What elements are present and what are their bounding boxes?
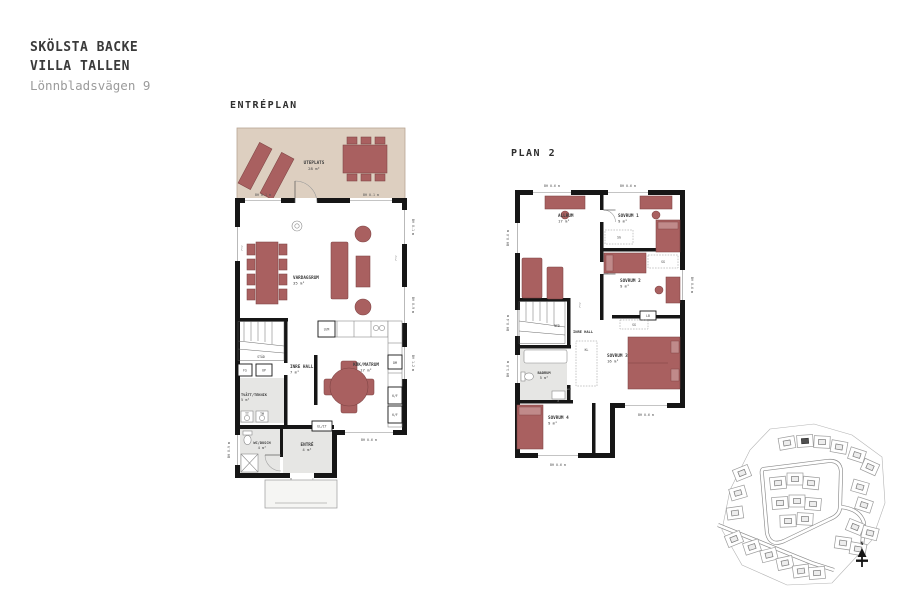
badrum-area: 5 m²: [540, 376, 548, 380]
street-address: Lönnbladsvägen 9: [30, 76, 150, 95]
kok-area: 17 m²: [360, 368, 372, 373]
sink-icon: [373, 325, 378, 330]
dishwasher-label: DM: [393, 361, 397, 365]
washbasin-icon: [552, 391, 565, 399]
site-lot: [797, 513, 814, 526]
up-closet-label: UP: [262, 369, 266, 373]
dim-left: BH 0.9 m: [227, 442, 231, 458]
floor1-title: ENTRÉPLAN: [230, 100, 298, 111]
p2-toilet-icon: [521, 372, 533, 381]
dim-top-left: BH 0.1 m: [255, 193, 271, 197]
site-lot: [797, 434, 814, 447]
bedroom-2: SG SOVRUM 2 9 m²: [604, 253, 680, 303]
lot-house: [809, 501, 816, 507]
dim-right-low: BH 1.2 m: [411, 355, 415, 371]
bathroom: BADRUM 5 m²: [520, 349, 567, 400]
bedroom-4: SOVRUM 4 9 m²: [517, 405, 569, 449]
site-lot: [778, 436, 796, 451]
bedroom-1: SG SOVRUM 1 9 m²: [605, 196, 680, 252]
uteplats-area: 28 m²: [308, 166, 320, 171]
site-lot: [834, 536, 852, 550]
plan2-floorplan: BH 0.6 m BH 0.6 m BH 0.6 m BH 0.4 m BH 1…: [500, 145, 710, 470]
site-lot: [776, 555, 794, 570]
site-lot: [789, 495, 805, 507]
lot-house: [776, 500, 783, 505]
site-lot: [760, 547, 778, 563]
p2-dim-right: BH 0.6 m: [690, 277, 694, 293]
tvatt-label: TVÄTT/TEKNIK: [241, 392, 268, 397]
site-lot: [848, 447, 867, 463]
sofa-group: [331, 226, 371, 315]
f1-hall-area: 7 m²: [290, 370, 299, 375]
p2-ftv-label: FTV: [578, 302, 582, 307]
lot-house: [801, 516, 808, 521]
family-room: ALLRUM 17 m²: [522, 196, 585, 299]
sg3-wardrobe-label: SG: [632, 323, 636, 327]
kitchen: U/M DM K/F K/F KÖK/MATRUM 17 m²: [318, 321, 402, 427]
lot-house: [818, 439, 825, 444]
lot-house: [781, 560, 789, 566]
sovrum1-area: 9 m²: [618, 219, 627, 224]
living-room: VARDAGSRUM 35 m²: [247, 221, 371, 315]
p2-stairs: NED: [519, 301, 565, 344]
house-model-name: VILLA TALLEN: [30, 57, 150, 76]
site-lot: [802, 476, 819, 490]
sovrum2-area: 9 m²: [620, 284, 629, 289]
sovrum3-area: 16 m²: [607, 359, 619, 364]
lot-house: [835, 444, 843, 450]
project-name: SKÖLSTA BACKE: [30, 38, 150, 57]
p2-dim-top-right: BH 0.6 m: [620, 184, 636, 188]
site-lot: [814, 436, 831, 449]
bathtub-icon: [524, 350, 567, 363]
freezer-label: K/F: [392, 413, 398, 417]
fridge-label: K/F: [392, 394, 398, 398]
hall-closets: FS UP: [238, 364, 272, 376]
toilet-icon: [243, 431, 252, 445]
lot-house: [797, 568, 805, 574]
p2-dim-left-mid: BH 0.4 m: [506, 315, 510, 331]
site-lot: [769, 476, 786, 490]
shower-icon: [241, 454, 258, 472]
sg1-wardrobe-label: SG: [617, 236, 621, 240]
p2-dim-left-top: BH 0.6 m: [506, 230, 510, 246]
site-lot: [805, 497, 822, 510]
floorplan-sheet: SKÖLSTA BACKE VILLA TALLEN Lönnbladsväge…: [0, 0, 900, 600]
lot-house: [794, 499, 801, 504]
fs-closet-label: FS: [243, 369, 247, 373]
wc-label: WC/DUSCH: [253, 441, 270, 445]
highlighted-lot-house: [801, 438, 808, 443]
p2-dim-left-low: BH 1.0 m: [506, 361, 510, 377]
site-lot: [780, 515, 796, 528]
allrum-area: 17 m²: [558, 219, 570, 224]
sheet-header: SKÖLSTA BACKE VILLA TALLEN Lönnbladsväge…: [30, 38, 150, 95]
badrum-label: BADRUM: [538, 371, 552, 375]
elit-closet-label: EL/IT: [317, 425, 326, 429]
p2-dim-bottom-left: BH 0.6 m: [550, 463, 566, 467]
ftv-label-left: FTV: [240, 245, 244, 250]
terrace-area: UTEPLATS 28 m²: [237, 128, 405, 200]
lot-house: [784, 518, 791, 523]
entreplan-floorplan: UTEPLATS 28 m²: [220, 115, 430, 515]
lot-house: [774, 480, 781, 486]
site-lot: [772, 496, 789, 509]
wc-shower-room: WC/DUSCH 4 m²: [240, 429, 281, 473]
site-lot: [726, 506, 744, 520]
site-plan: N: [712, 415, 900, 595]
wc-area: 4 m²: [258, 446, 266, 450]
site-lot: [851, 479, 870, 495]
washer-label: TT: [245, 412, 249, 416]
stad-closet-label: STÄD: [257, 354, 265, 359]
lot-house: [813, 570, 820, 576]
lb-closet-label: LB: [646, 314, 650, 318]
site-lot: [743, 539, 762, 555]
dining-table: [247, 242, 287, 304]
kl-closet-label: KL: [585, 348, 589, 352]
oven-micro-label: U/M: [324, 328, 330, 332]
fireplace-icon: [292, 221, 302, 231]
entry-porch: [265, 480, 337, 508]
lot-house: [807, 480, 814, 486]
dryer-label: TM: [260, 412, 264, 416]
ftv-label-right: FTV: [394, 255, 398, 260]
vardagsrum-area: 35 m²: [293, 281, 305, 286]
dim-right-mid: BH 0.9 m: [411, 297, 415, 313]
bedroom-3: SOVRUM 3 16 m²: [607, 337, 680, 389]
sovrum4-area: 9 m²: [548, 421, 557, 426]
site-lot: [830, 440, 848, 455]
dim-right-top: BH 0.1 m: [411, 219, 415, 235]
site-lot: [809, 566, 826, 579]
lot-house: [783, 440, 791, 446]
lot-house: [792, 477, 799, 482]
sg2-wardrobe-label: SG: [661, 260, 665, 264]
ned-stairs-label: NED: [554, 324, 560, 328]
dim-top-right: BH 0.1 m: [363, 193, 379, 197]
p2-dim-bottom-right: BH 0.6 m: [638, 413, 654, 417]
p2-dim-top-left: BH 0.6 m: [544, 184, 560, 188]
lot-house: [839, 540, 847, 546]
dim-bottom: BH 0.6 m: [361, 438, 377, 442]
stairs: STÄD: [238, 321, 284, 361]
tvatt-area: 5 m²: [241, 398, 249, 402]
laundry-room: TVÄTT/TEKNIK 5 m² TT TM: [240, 378, 284, 423]
site-lot: [787, 473, 803, 485]
site-lot: [792, 564, 810, 578]
terrace-dining-table: [343, 137, 387, 181]
entre-area: 4 m²: [302, 447, 311, 452]
lot-house: [731, 510, 739, 516]
north-label: N: [861, 541, 864, 547]
p2-hall-label: INRE HALL: [573, 330, 594, 334]
